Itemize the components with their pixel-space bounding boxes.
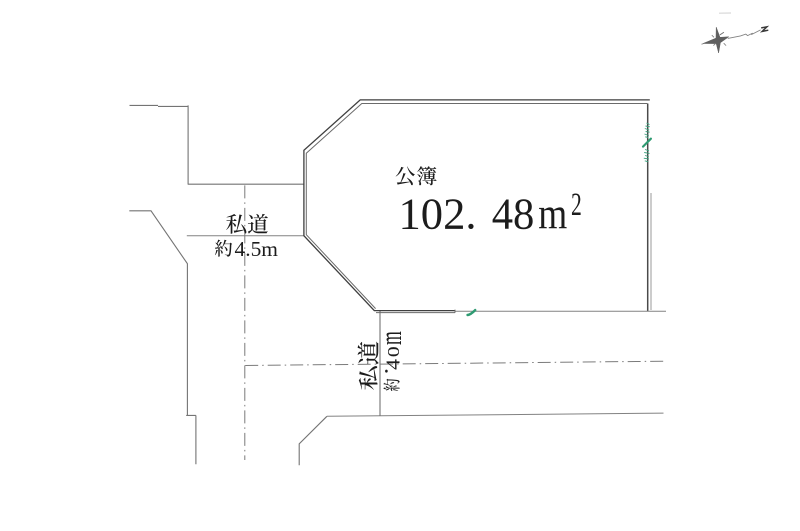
svg-text:m: m xyxy=(373,331,408,345)
svg-text:48: 48 xyxy=(492,190,535,239)
svg-text:m: m xyxy=(538,190,567,239)
svg-text:4: 4 xyxy=(382,359,404,370)
svg-text:0: 0 xyxy=(384,346,403,357)
svg-text:102.: 102. xyxy=(399,190,477,239)
svg-text:4.5m: 4.5m xyxy=(235,237,279,261)
svg-text:2: 2 xyxy=(571,187,582,223)
